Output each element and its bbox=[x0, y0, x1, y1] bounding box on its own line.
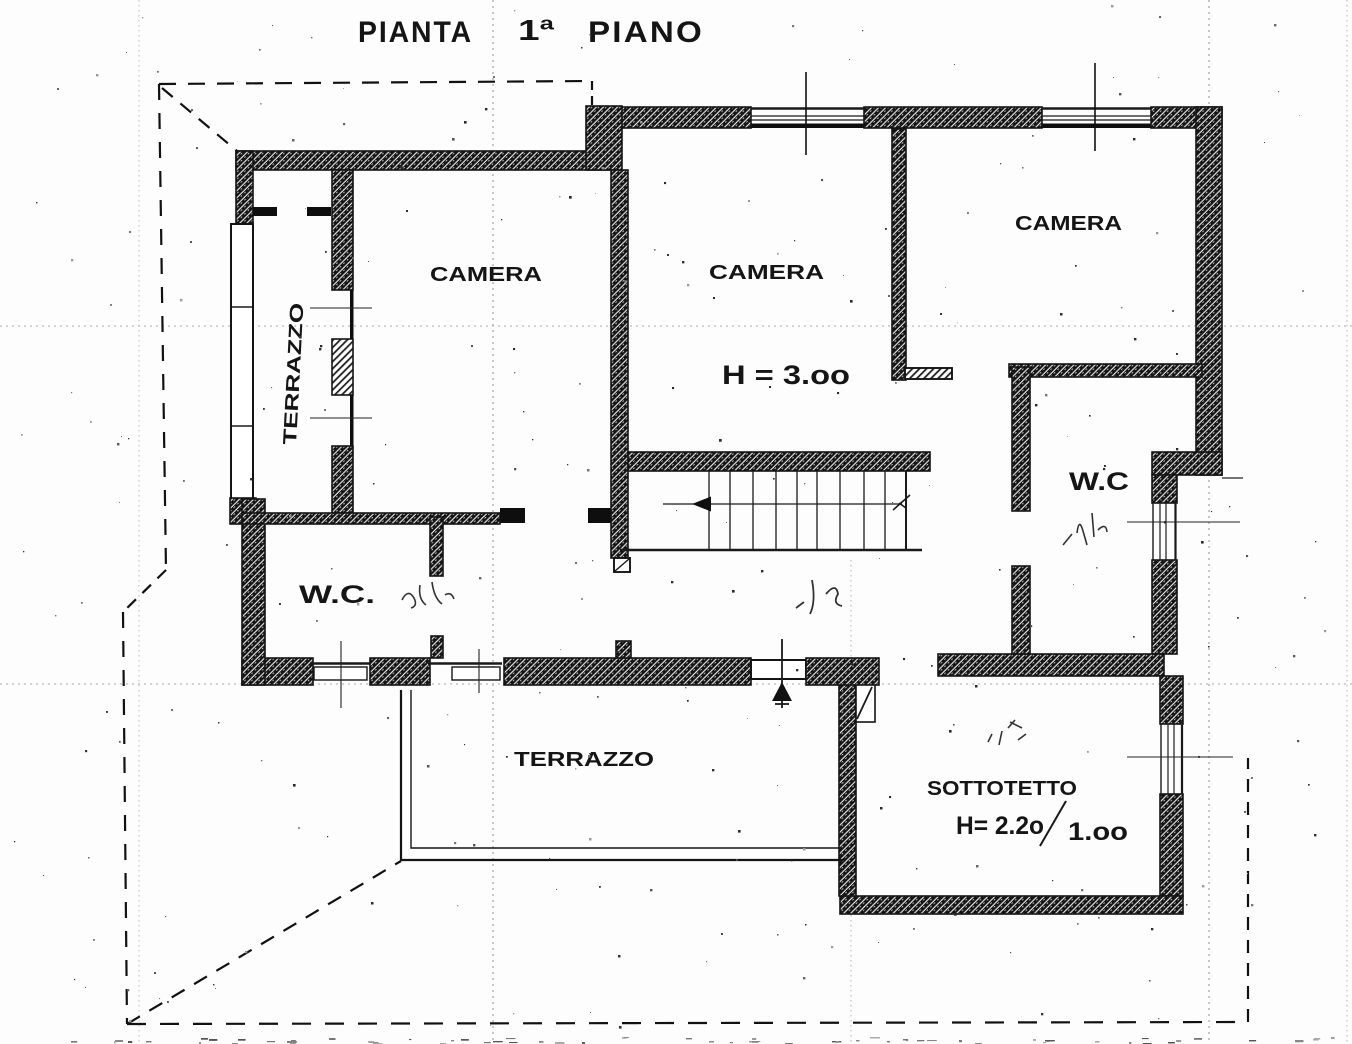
svg-text:H= 2.2o: H= 2.2o bbox=[956, 812, 1044, 840]
svg-text:1.oo: 1.oo bbox=[1068, 818, 1128, 846]
svg-text:SOTTOTETTO: SOTTOTETTO bbox=[927, 778, 1077, 800]
svg-text:1ª: 1ª bbox=[518, 15, 554, 47]
svg-text:W.C.: W.C. bbox=[299, 581, 375, 609]
svg-text:W.C: W.C bbox=[1069, 468, 1129, 496]
svg-text:PIANTA: PIANTA bbox=[358, 16, 473, 49]
svg-text:CAMERA: CAMERA bbox=[430, 264, 542, 286]
svg-text:H = 3.oo: H = 3.oo bbox=[722, 360, 850, 390]
svg-text:PIANO: PIANO bbox=[588, 16, 704, 49]
svg-text:TERRAZZO: TERRAZZO bbox=[514, 749, 654, 771]
svg-text:CAMERA: CAMERA bbox=[709, 262, 824, 284]
svg-text:CAMERA: CAMERA bbox=[1015, 213, 1122, 235]
